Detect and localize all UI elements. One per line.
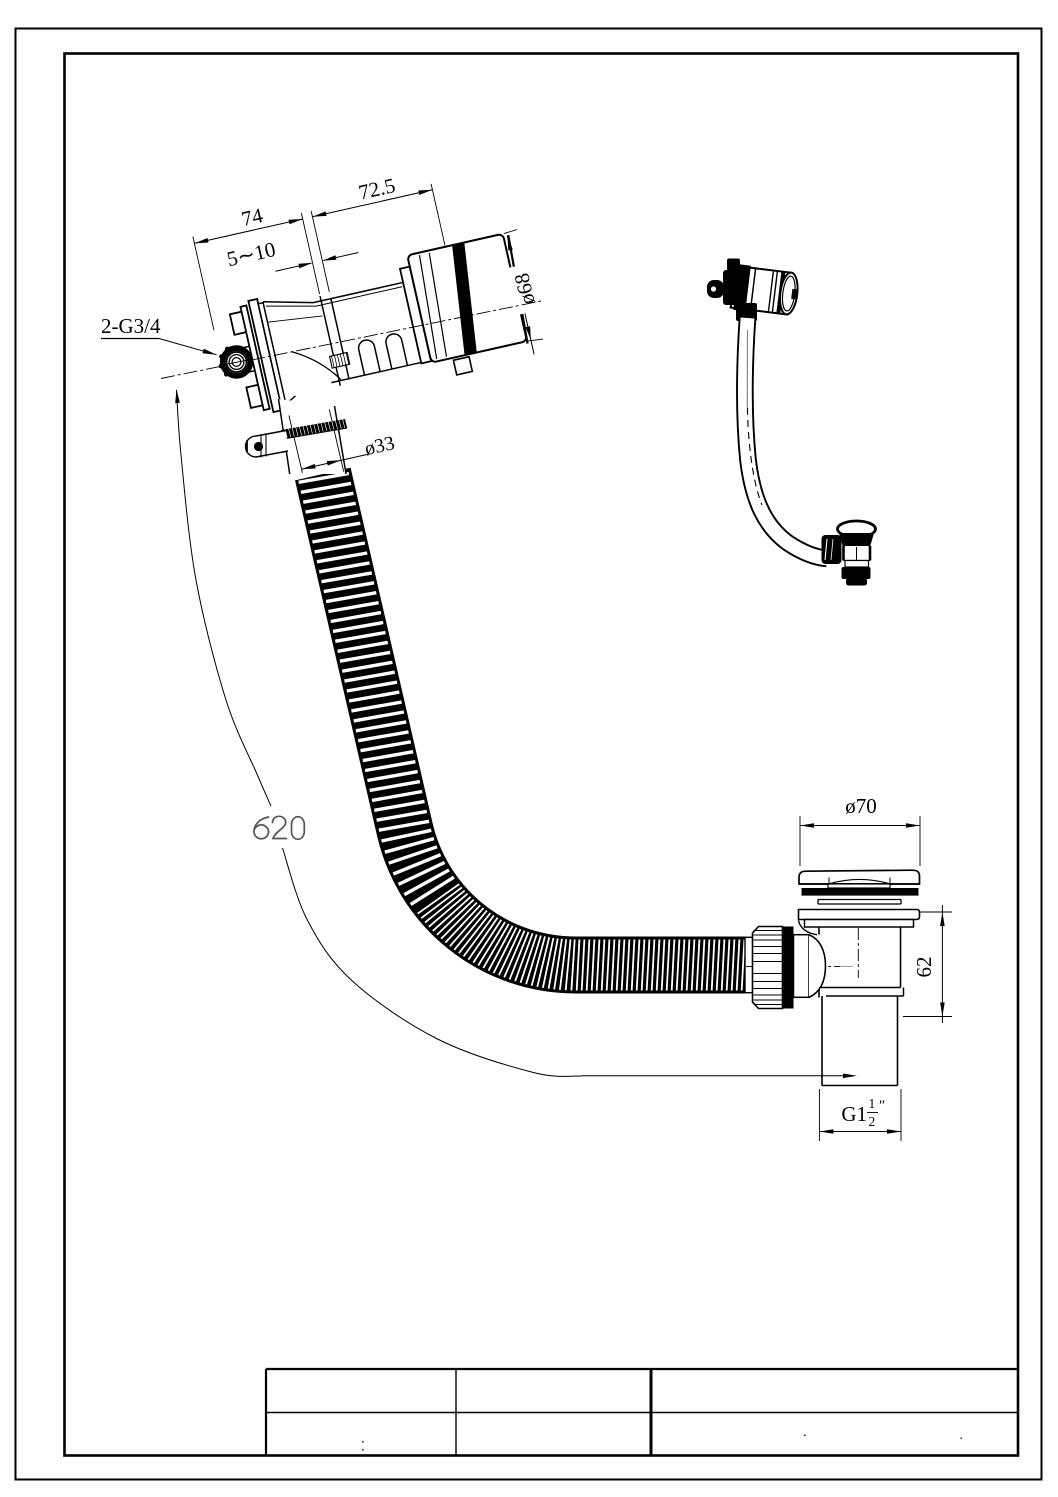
- svg-text:1: 1: [869, 1096, 876, 1111]
- svg-text:2: 2: [869, 1114, 876, 1129]
- svg-text:G1: G1: [841, 1102, 867, 1126]
- svg-text:62: 62: [912, 957, 936, 978]
- svg-text:″: ″: [879, 1098, 885, 1114]
- svg-text:2-G3/4: 2-G3/4: [101, 314, 161, 338]
- svg-text:ø70: ø70: [845, 794, 877, 818]
